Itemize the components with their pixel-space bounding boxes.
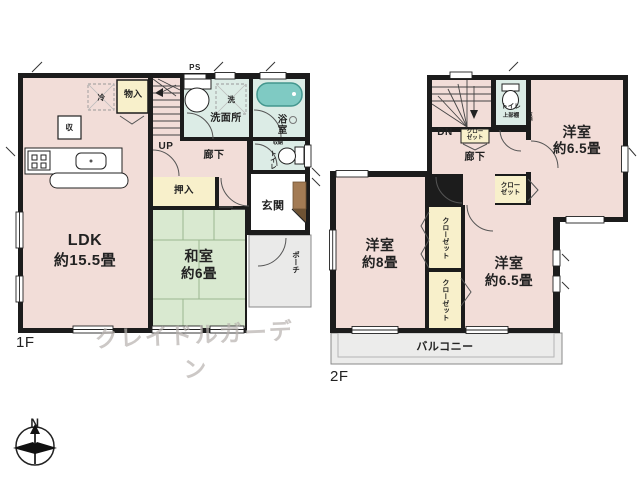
- compass-icon: [13, 424, 57, 465]
- stair-closet: [461, 129, 489, 143]
- porch-area: [249, 235, 311, 307]
- stove-icon: [28, 151, 50, 170]
- balcony-area: [331, 333, 562, 364]
- storage-box: [58, 116, 81, 139]
- toilet-icon-1f: [279, 147, 305, 164]
- vanity-sink-icon: [184, 79, 211, 112]
- monoire-closet: [117, 80, 148, 113]
- toilet-icon-2f: [502, 84, 519, 110]
- floorplan-page: LDK 約15.5畳 和室 約6畳 洗面所 浴室 廊下 トイレ 収納 玄関 ポー…: [0, 0, 640, 480]
- floorplan-drawing: [0, 0, 640, 480]
